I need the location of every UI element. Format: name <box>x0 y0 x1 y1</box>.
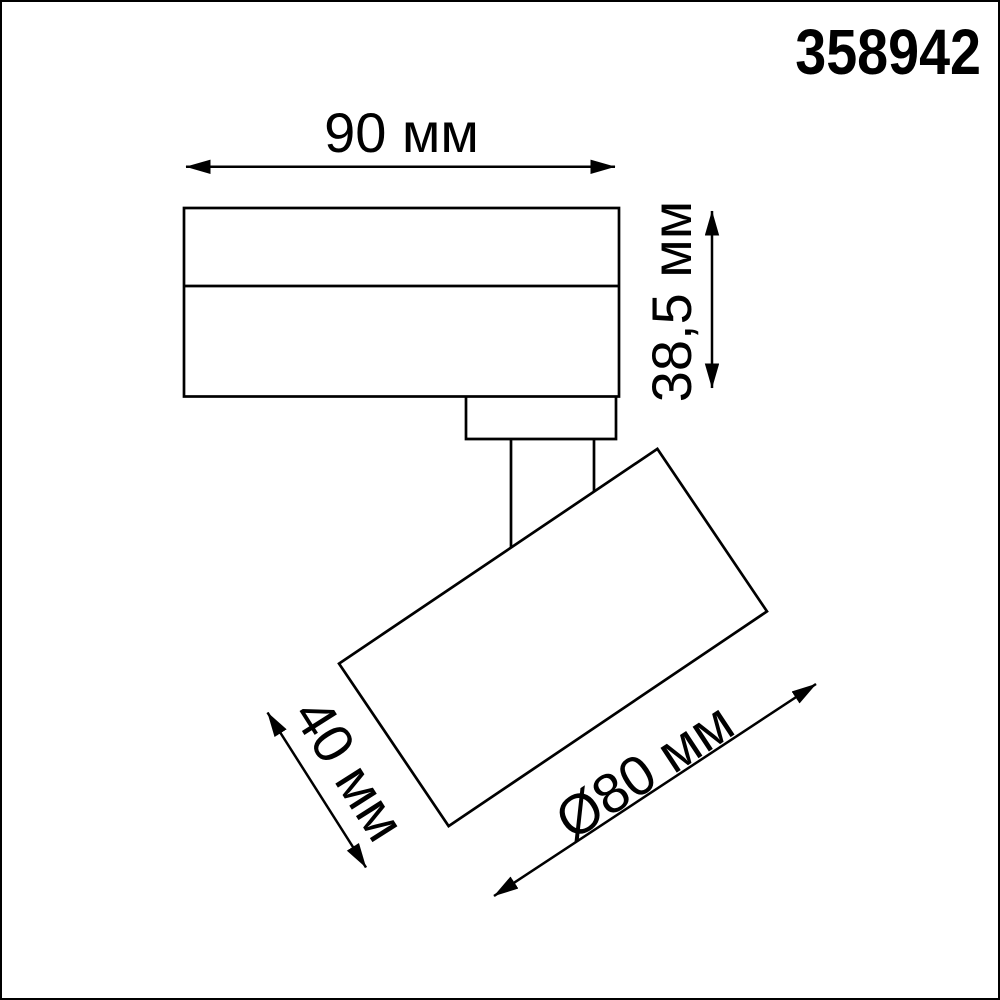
svg-text:38,5 мм: 38,5 мм <box>640 201 703 403</box>
svg-text:90 мм: 90 мм <box>324 101 479 164</box>
svg-text:358942: 358942 <box>795 16 981 87</box>
